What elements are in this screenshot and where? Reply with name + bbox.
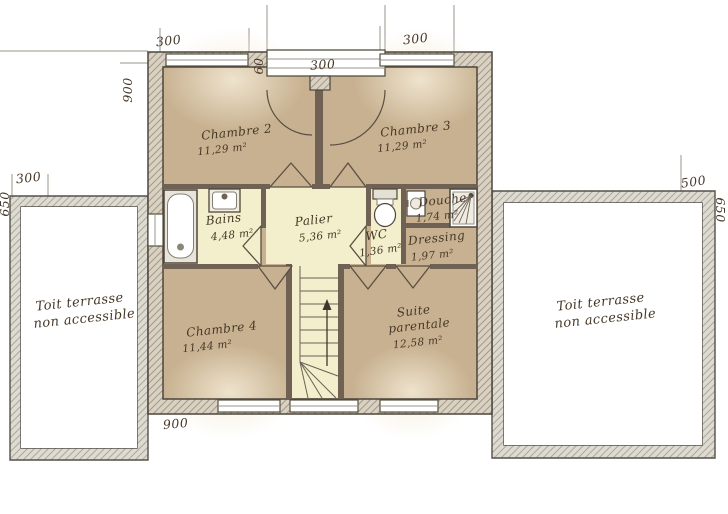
- dimension-top-right: 300: [402, 30, 429, 48]
- window-bottom-center: [290, 400, 358, 412]
- wall-stairs-suite: [338, 264, 344, 398]
- right-terrace: Toit terrasse non accessible: [492, 191, 715, 458]
- light-vignette: [161, 28, 305, 132]
- dimension-left-terrace-height: 650: [0, 191, 12, 216]
- dimension-left-height: 900: [120, 77, 135, 102]
- window-top-left: [166, 54, 248, 66]
- central-block: Chambre 2 11,29 m² Chambre 3 11,29 m² Ba…: [148, 28, 492, 440]
- light-vignette: [352, 344, 472, 440]
- dimension-bay-depth: 60: [251, 58, 266, 75]
- wall-chambre2-chambre3: [315, 76, 323, 189]
- dimension-bay-width: 300: [310, 56, 336, 73]
- dimension-right-terrace-height: 650: [713, 197, 728, 222]
- wall-middle-bottom-mid: [386, 264, 396, 269]
- window-bains-side: [148, 214, 163, 246]
- wall-middle-bottom-right: [430, 264, 477, 269]
- wall-middle-bottom-left: [163, 264, 258, 269]
- wall-bedrooms-middle-left: [163, 184, 270, 189]
- bains-sink: [209, 189, 240, 212]
- wall-bedrooms-middle-center: [312, 184, 330, 189]
- bay-center-pier: [310, 76, 330, 90]
- wall-bains-palier: [261, 189, 266, 228]
- window-top-right: [380, 54, 454, 66]
- toilet: [373, 189, 397, 227]
- wall-douche-dressing: [406, 223, 450, 228]
- dimension-left-terrace-width: 300: [15, 169, 42, 187]
- dimension-right-terrace-width: 500: [680, 172, 707, 190]
- floor-plan-page: Toit terrasse non accessible Toit terras…: [0, 0, 728, 514]
- wall-stairs-chambre4: [286, 264, 292, 398]
- dimension-top-left: 300: [155, 32, 182, 50]
- dimension-bottom: 900: [162, 415, 189, 432]
- wall-palier-wc: [366, 189, 371, 226]
- floor-plan: Toit terrasse non accessible Toit terras…: [0, 0, 728, 514]
- window-bottom-left: [218, 400, 280, 412]
- bathtub: [164, 190, 197, 263]
- staircase-floor: [292, 264, 338, 398]
- window-bottom-right: [380, 400, 438, 412]
- left-terrace: Toit terrasse non accessible: [10, 196, 148, 460]
